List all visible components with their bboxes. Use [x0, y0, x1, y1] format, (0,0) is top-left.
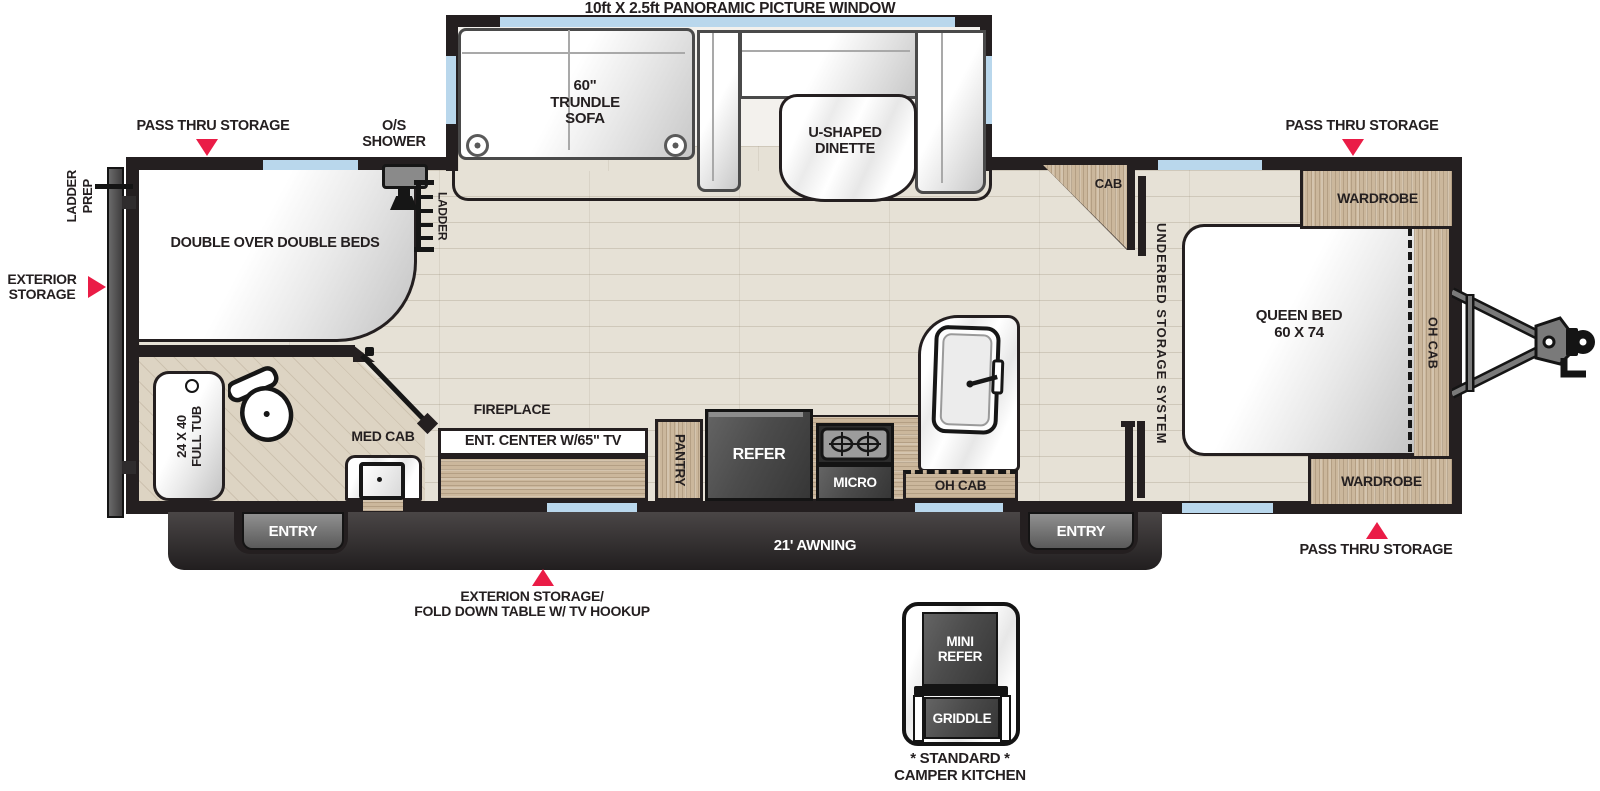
sink-drain [377, 477, 382, 482]
ladder-label: LADDER [434, 183, 450, 249]
ladder-prep-label: LADDER PREP [62, 148, 98, 244]
fold-down-table-arrow-icon [532, 569, 554, 586]
wardrobe-bottom: WARDROBE [1308, 456, 1455, 507]
wall-stub-cap [1121, 421, 1135, 427]
dinette-seam [941, 33, 943, 183]
kitchen-oh-cab: OH CAB [903, 470, 1018, 501]
sofa-label: 60" TRUNDLE SOFA [490, 78, 680, 128]
rv-floorplan: 10ft X 2.5ft PANORAMIC PICTURE WINDOW 60… [0, 0, 1600, 791]
pantry: PANTRY [655, 419, 703, 501]
fireplace-label: FIREPLACE [452, 402, 572, 417]
dinette-left-bench [697, 30, 741, 192]
griddle-handle [913, 695, 924, 742]
bumper-bracket [122, 196, 136, 209]
fold-down-table-label: EXTERION STORAGE/ FOLD DOWN TABLE W/ TV … [382, 589, 682, 620]
ent-center-tv: ENT. CENTER W/65" TV [438, 428, 648, 456]
shower-head-stem [398, 188, 410, 196]
microwave: MICRO [816, 464, 894, 501]
exterior-storage-arrow-icon [88, 276, 106, 298]
awning-label: 21' AWNING [745, 537, 885, 554]
cab-label: CAB [1095, 177, 1122, 191]
double-bunk-beds [139, 170, 417, 342]
bath-door-handle [365, 347, 374, 356]
cooktop [816, 423, 894, 465]
dinette-label: U-SHAPED DINETTE [781, 126, 909, 158]
griddle-handle [1000, 695, 1011, 742]
entry-door-left: ENTRY [242, 512, 344, 550]
window [1158, 160, 1262, 170]
bed-head-dashed-line [1408, 228, 1412, 452]
bumper-bracket [122, 461, 136, 474]
underbed-storage-label: UNDERBED STORAGE SYSTEM [1150, 205, 1172, 463]
bedroom-oh-cab: OH CAB [1414, 224, 1452, 462]
refer-top-trim [709, 412, 803, 417]
toilet-icon [228, 358, 310, 448]
ladder-icon [414, 180, 436, 252]
sofa-armrest [466, 134, 489, 157]
bunk-beds-label: DOUBLE OVER DOUBLE BEDS [145, 236, 405, 252]
pass-thru-left-arrow-icon [196, 139, 218, 156]
tub-drain [185, 379, 199, 393]
hitch-icon [1452, 268, 1597, 418]
ent-center-cabinet [438, 456, 648, 501]
dinette-back-bench [739, 30, 919, 99]
pass-thru-right-bottom-arrow-icon [1366, 522, 1388, 539]
window [263, 160, 358, 170]
wall-stub [1137, 421, 1145, 498]
vanity-sink [359, 462, 405, 500]
griddle: GRIDDLE [924, 697, 1000, 739]
window [1182, 503, 1273, 513]
refrigerator: REFER [705, 409, 813, 501]
sofa-armrest [664, 134, 687, 157]
slideout-left-window [446, 56, 456, 124]
ladder-prep-mark [95, 184, 133, 189]
kitchen-sink-icon [927, 322, 1015, 444]
wall-stub [1125, 426, 1133, 501]
wall-stub [1138, 176, 1146, 256]
pass-thru-storage-left-label: PASS THRU STORAGE [123, 119, 303, 135]
os-shower-label: O/S SHOWER [334, 119, 454, 151]
sofa-seam [462, 52, 685, 54]
dinette-seam [742, 50, 910, 52]
wall-stub [1127, 165, 1135, 250]
panoramic-window [500, 17, 955, 27]
entry-door-right: ENTRY [1028, 512, 1134, 550]
pass-thru-storage-right-bottom-label: PASS THRU STORAGE [1286, 543, 1466, 559]
camper-kitchen-caption: * STANDARD * CAMPER KITCHEN [880, 751, 1040, 784]
pass-thru-storage-right-top-label: PASS THRU STORAGE [1272, 119, 1452, 135]
wall-segment [139, 345, 355, 357]
pass-thru-right-top-arrow-icon [1342, 139, 1364, 156]
queen-bed-label: QUEEN BED 60 X 74 [1199, 308, 1399, 341]
dinette-seam [712, 33, 714, 181]
wardrobe-top: WARDROBE [1300, 168, 1455, 229]
cooktop-grate-icon [819, 426, 891, 462]
tub-label: 24 X 40 FULL TUB [174, 406, 204, 467]
dinette-right-bench [915, 30, 986, 194]
med-cab-label: MED CAB [339, 429, 427, 444]
camper-kitchen-divider [914, 686, 1008, 696]
exterior-storage-label: EXTERIOR STORAGE [0, 272, 84, 303]
mini-refer: MINI REFER [922, 612, 998, 686]
